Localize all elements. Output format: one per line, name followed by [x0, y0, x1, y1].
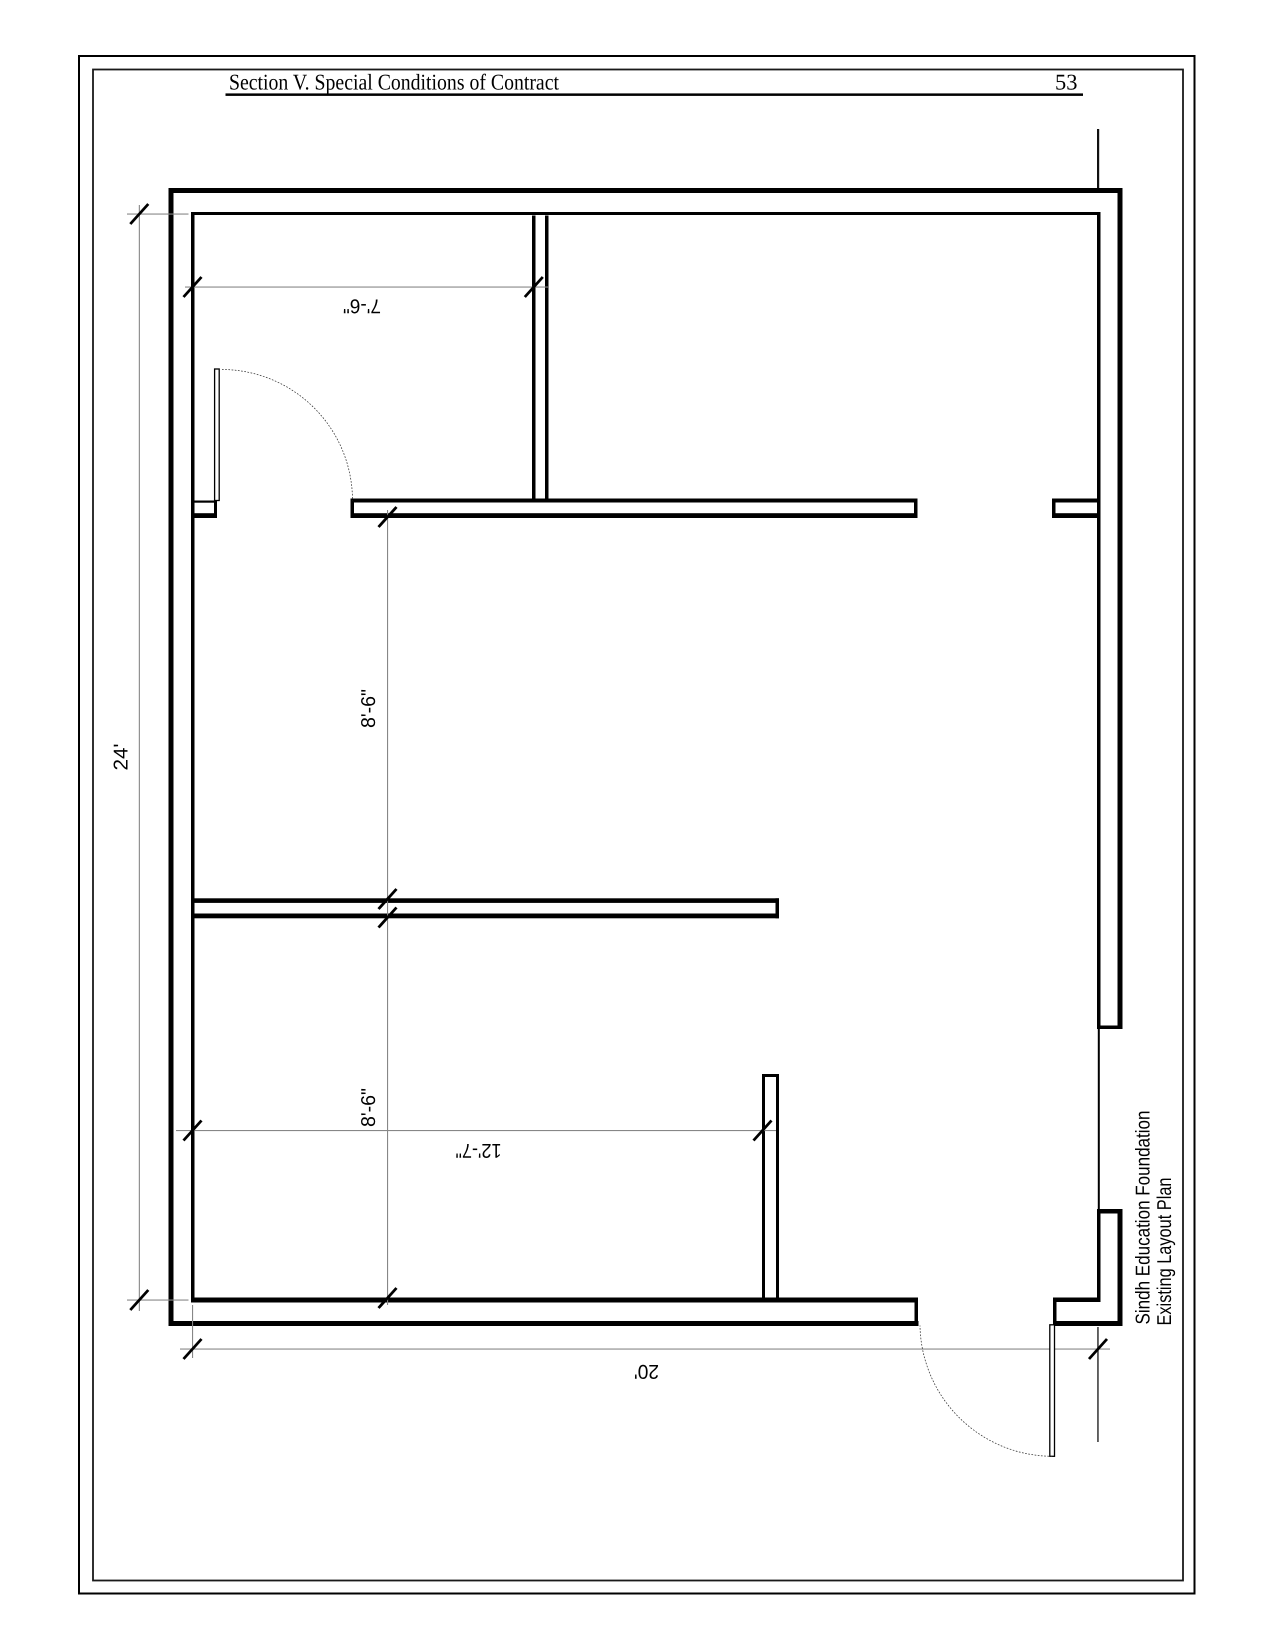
svg-text:53: 53	[1055, 70, 1078, 95]
svg-text:Existing Layout Plan: Existing Layout Plan	[1154, 1178, 1176, 1326]
svg-text:24': 24'	[111, 744, 133, 771]
svg-text:20': 20'	[634, 1360, 659, 1382]
svg-text:12'-7": 12'-7"	[456, 1139, 502, 1161]
svg-text:8'-6": 8'-6"	[358, 689, 380, 728]
svg-text:Section V. Special Conditions: Section V. Special Conditions of Contrac…	[229, 70, 560, 95]
svg-text:8'-6": 8'-6"	[358, 1088, 380, 1127]
svg-text:Sindh Education Foundation: Sindh Education Foundation	[1133, 1111, 1155, 1325]
svg-text:7'-6": 7'-6"	[343, 295, 381, 317]
